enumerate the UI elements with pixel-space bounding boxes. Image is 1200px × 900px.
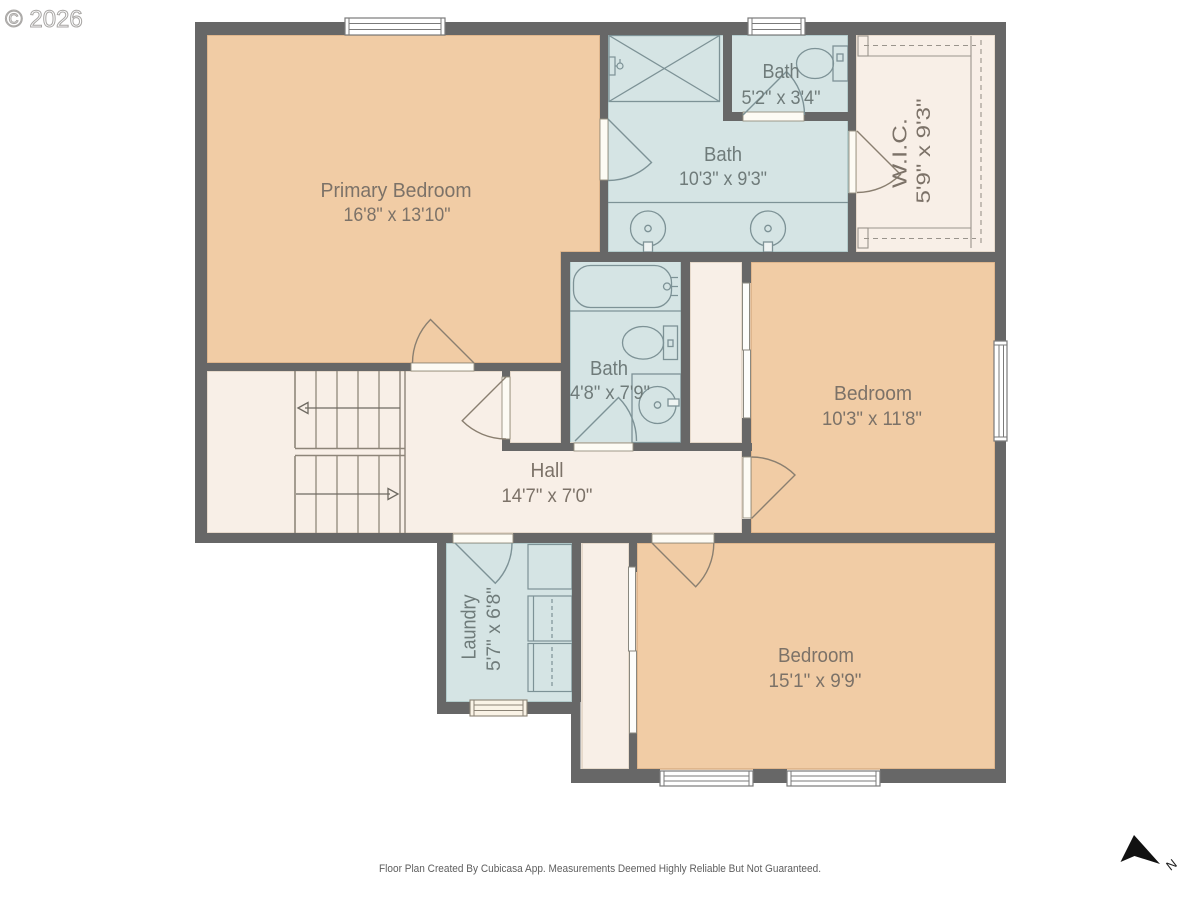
svg-text:Bedroom: Bedroom bbox=[834, 382, 912, 405]
svg-text:10'3" x 9'3": 10'3" x 9'3" bbox=[679, 168, 767, 190]
svg-text:Hall: Hall bbox=[531, 459, 564, 482]
svg-text:Primary Bedroom: Primary Bedroom bbox=[321, 179, 472, 202]
svg-text:Bath: Bath bbox=[590, 357, 628, 380]
svg-text:Bedroom: Bedroom bbox=[778, 644, 854, 667]
svg-text:Floor Plan Created By Cubicasa: Floor Plan Created By Cubicasa App. Meas… bbox=[379, 863, 821, 875]
svg-text:Bath: Bath bbox=[763, 60, 800, 83]
svg-text:5'9" x 9'3": 5'9" x 9'3" bbox=[913, 98, 935, 203]
svg-text:5'7" x 6'8": 5'7" x 6'8" bbox=[483, 587, 505, 671]
svg-text:© 2026: © 2026 bbox=[5, 6, 83, 33]
svg-text:14'7" x 7'0": 14'7" x 7'0" bbox=[502, 485, 593, 507]
svg-text:W.I.C.: W.I.C. bbox=[889, 118, 912, 188]
svg-text:16'8" x 13'10": 16'8" x 13'10" bbox=[344, 204, 451, 226]
svg-text:10'3" x 11'8": 10'3" x 11'8" bbox=[822, 408, 922, 430]
svg-text:15'1" x 9'9": 15'1" x 9'9" bbox=[769, 670, 862, 692]
svg-text:Laundry: Laundry bbox=[458, 594, 481, 660]
svg-text:Bath: Bath bbox=[704, 143, 742, 166]
svg-text:4'8" x 7'9": 4'8" x 7'9" bbox=[570, 382, 650, 404]
svg-text:5'2" x 3'4": 5'2" x 3'4" bbox=[742, 87, 821, 109]
